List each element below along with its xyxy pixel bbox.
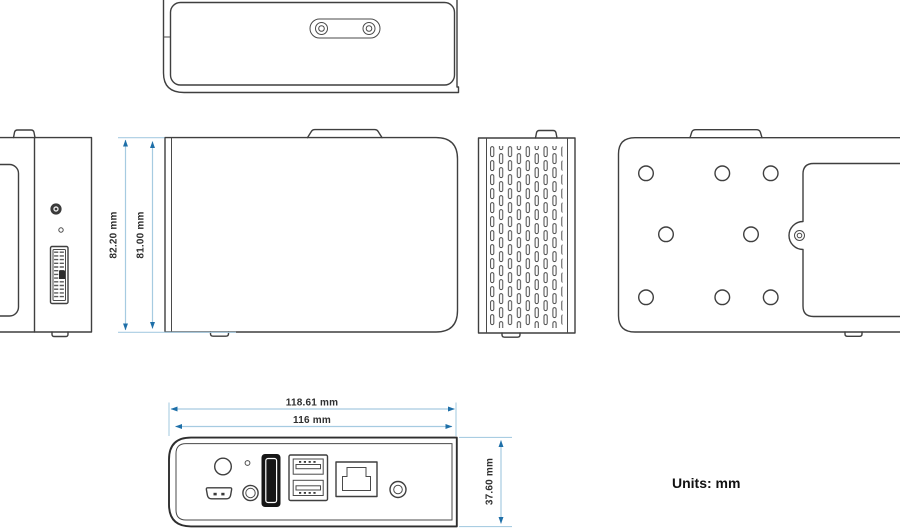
dim-label-rear-inner-width: 116 mm bbox=[293, 415, 331, 426]
usb-port-top bbox=[293, 459, 323, 474]
dim-front-outer-height: 82.20 mm bbox=[109, 138, 237, 333]
device-dimension-drawing: 82.20 mm 81.00 mm bbox=[0, 0, 900, 530]
usb-port-bottom bbox=[293, 480, 323, 495]
mounting-plate bbox=[310, 19, 380, 38]
left-side-body bbox=[0, 138, 92, 332]
vent-view-top-tab bbox=[536, 131, 558, 139]
front-view-body bbox=[165, 138, 458, 332]
screw-icon bbox=[50, 203, 61, 214]
screw-icon bbox=[363, 23, 375, 35]
bottom-view bbox=[619, 130, 900, 337]
mounting-holes bbox=[639, 166, 778, 305]
micro-usb-port bbox=[206, 488, 231, 499]
dim-label-front-inner-height: 81.00 mm bbox=[136, 211, 147, 258]
mounting-hole bbox=[639, 290, 654, 305]
mounting-hole bbox=[715, 290, 730, 305]
rear-ports-view bbox=[169, 438, 457, 527]
units-label: Units: mm bbox=[672, 475, 740, 491]
ethernet-port bbox=[336, 462, 377, 497]
dim-label-rear-panel-height: 37.60 mm bbox=[485, 458, 496, 505]
mounting-hole bbox=[763, 166, 778, 181]
led-indicator bbox=[245, 461, 250, 466]
front-view-top-tab bbox=[308, 130, 383, 138]
bottom-view-top-tab bbox=[690, 130, 762, 138]
expansion-connector bbox=[51, 247, 69, 304]
rear-panel-outer bbox=[169, 438, 457, 527]
mounting-plate-outline bbox=[310, 19, 380, 38]
mounting-hole bbox=[763, 290, 778, 305]
front-view bbox=[165, 130, 458, 337]
power-button bbox=[215, 458, 232, 475]
dim-label-front-outer-height: 82.20 mm bbox=[109, 211, 120, 258]
left-side-panel bbox=[0, 165, 19, 317]
usb-ports bbox=[289, 455, 328, 501]
pinhole bbox=[59, 228, 63, 232]
technical-drawing-page: 82.20 mm 81.00 mm bbox=[0, 0, 900, 530]
mounting-hole bbox=[639, 166, 654, 181]
mounting-hole bbox=[659, 227, 674, 242]
dim-label-rear-outer-width: 118.61 mm bbox=[286, 398, 338, 409]
mounting-hole bbox=[715, 166, 730, 181]
top-view bbox=[164, 0, 459, 93]
screw-icon bbox=[795, 231, 805, 241]
left-side-top-tab bbox=[14, 130, 36, 138]
bottom-view-body bbox=[619, 138, 900, 332]
dc-power-jack bbox=[390, 482, 406, 498]
mounting-hole bbox=[744, 227, 759, 242]
dim-front-inner-height: 81.00 mm bbox=[136, 142, 153, 329]
screw-icon bbox=[316, 23, 328, 35]
left-side-view bbox=[0, 130, 92, 337]
hdmi-port bbox=[262, 454, 281, 507]
access-door bbox=[789, 164, 900, 317]
vent-grille bbox=[490, 146, 563, 328]
av-jack bbox=[243, 485, 258, 500]
dim-rear-inner-width: 116 mm bbox=[176, 415, 453, 427]
top-view-outer-outline bbox=[164, 0, 459, 93]
top-view-face bbox=[171, 3, 455, 86]
dim-rear-panel-height: 37.60 mm bbox=[459, 437, 512, 526]
right-side-vent-view bbox=[479, 131, 576, 338]
